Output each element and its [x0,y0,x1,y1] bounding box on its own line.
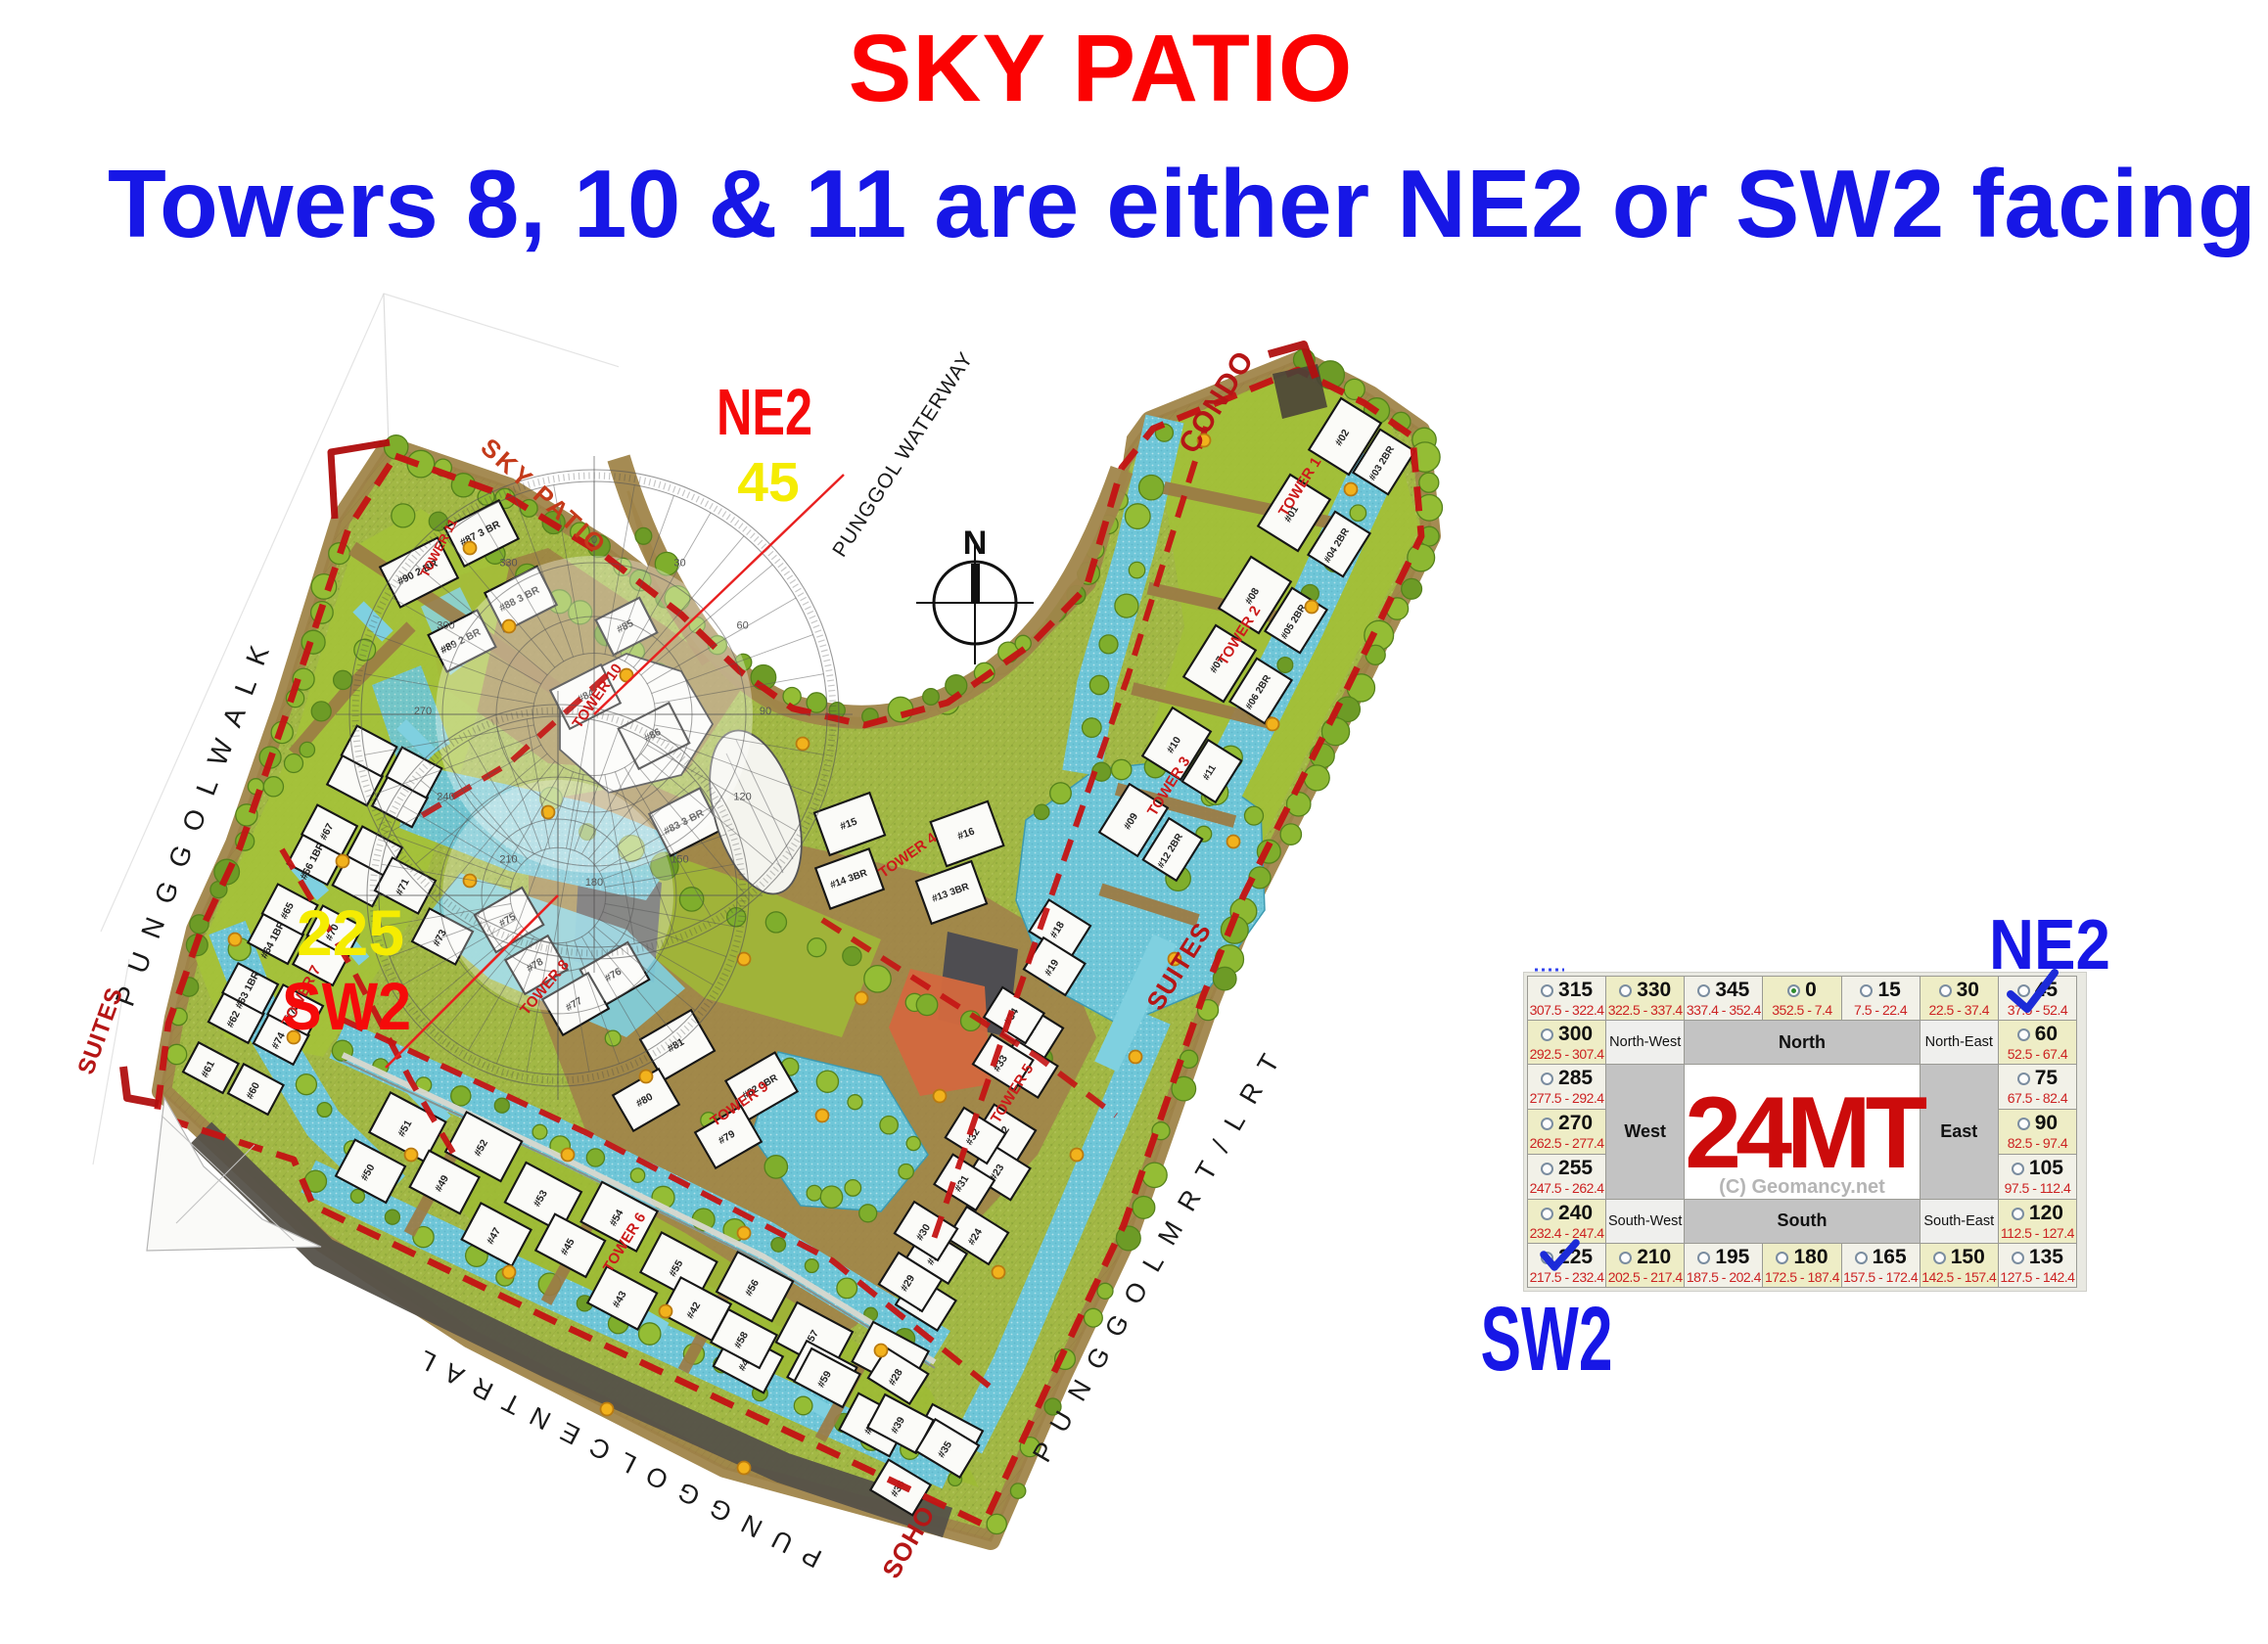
svg-text:SW2: SW2 [1481,1288,1613,1390]
